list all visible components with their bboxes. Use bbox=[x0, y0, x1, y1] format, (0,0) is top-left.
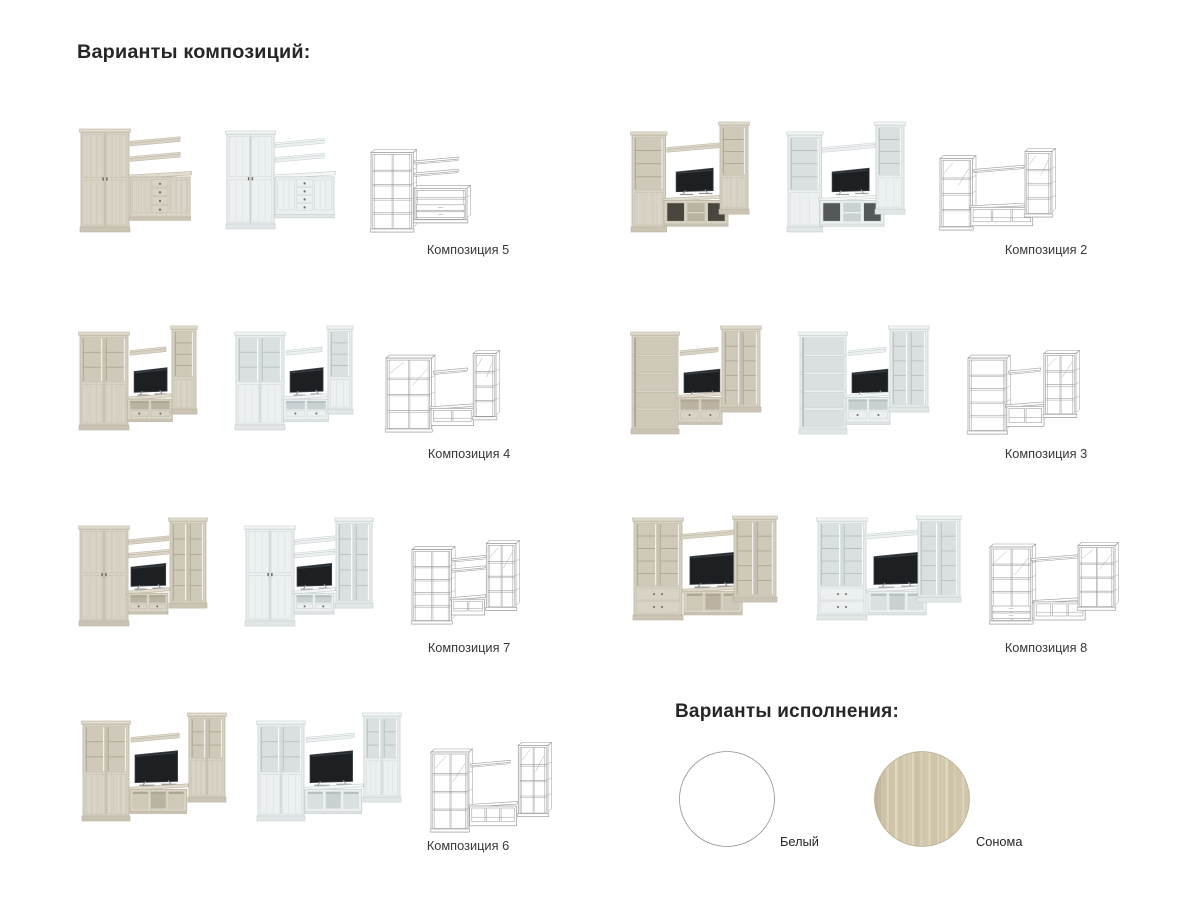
svg-text:Композиция 2: Композиция 2 bbox=[1005, 242, 1087, 257]
svg-text:Композиция 6: Композиция 6 bbox=[427, 838, 509, 853]
svg-text:Композиция 3: Композиция 3 bbox=[1005, 446, 1087, 461]
svg-text:Варианты композиций:: Варианты композиций: bbox=[77, 41, 310, 63]
svg-text:Композиция 8: Композиция 8 bbox=[1005, 640, 1087, 655]
svg-text:Композиция 7: Композиция 7 bbox=[428, 640, 510, 655]
svg-text:Композиция 4: Композиция 4 bbox=[428, 446, 510, 461]
svg-text:Композиция 5: Композиция 5 bbox=[427, 242, 509, 257]
svg-text:Белый: Белый bbox=[780, 834, 819, 849]
svg-text:Сонома: Сонома bbox=[976, 834, 1023, 849]
svg-text:Варианты исполнения:: Варианты исполнения: bbox=[675, 701, 899, 722]
